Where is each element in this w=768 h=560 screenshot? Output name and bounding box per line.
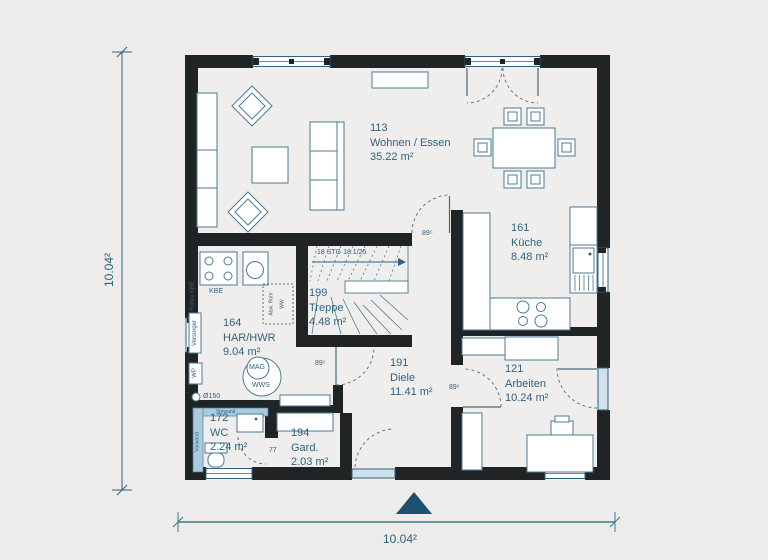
room-name: Arbeiten — [505, 377, 548, 392]
washer-kbe — [200, 252, 237, 285]
room-number: 121 — [505, 362, 548, 377]
room-name: Küche — [511, 236, 548, 251]
room-area: 9.04 m² — [223, 345, 276, 360]
stove-burner — [535, 315, 547, 327]
door-width-wc: 77 — [269, 447, 277, 454]
pipe-150 — [192, 393, 200, 401]
vorwand-label-top: Vorwand — [216, 410, 235, 415]
room-area: 8.48 m² — [511, 250, 548, 265]
kitchen-counter-left — [463, 213, 490, 330]
stair-landing — [345, 281, 408, 293]
pipe-label: Ø150 — [203, 393, 220, 400]
versorger-label: Versorger — [192, 320, 198, 346]
room-number: 113 — [370, 121, 451, 136]
kitchen-sink — [573, 248, 594, 273]
room-name: Diele — [390, 371, 433, 386]
door-width-kitchen: 89⁵ — [422, 230, 433, 237]
stair-note: 18 STG 18.1/25 — [317, 249, 366, 256]
room-label-arbeiten: 121 Arbeiten 10.24 m² — [505, 362, 548, 406]
room-area: 10.24 m² — [505, 391, 548, 406]
room-number: 161 — [511, 221, 548, 236]
room-area: 2.24 m² — [210, 440, 247, 455]
shelf-low — [462, 338, 505, 355]
dimension-left: 10.04² — [102, 253, 116, 287]
entry-arrow — [396, 492, 432, 514]
hall-sideboard — [280, 395, 330, 406]
sofa — [310, 122, 344, 210]
dining-table — [493, 128, 555, 168]
room-label-gard: 194 Gard. 2.03 m² — [291, 426, 328, 470]
riser-label-b: WW — [281, 299, 286, 308]
tall-cabinet — [462, 413, 482, 470]
room-label-treppe: 199 Treppe 4.48 m² — [309, 286, 346, 330]
room-number: 194 — [291, 426, 328, 441]
room-name: WC — [210, 426, 247, 441]
stove-burner — [537, 303, 546, 312]
wp-label: WP — [192, 368, 198, 378]
wws-label: WWS — [252, 382, 270, 389]
room-area: 35.22 m² — [370, 150, 451, 165]
room-area: 4.48 m² — [309, 315, 346, 330]
entry-door — [352, 469, 395, 478]
desk — [527, 435, 593, 472]
room-area: 11.41 m² — [390, 385, 433, 400]
coffee-table — [252, 147, 288, 183]
room-area: 2.03 m² — [291, 455, 328, 470]
room-name: Treppe — [309, 301, 346, 316]
stove-burner — [519, 317, 528, 326]
room-name: Gard. — [291, 441, 328, 456]
room-label-kueche: 161 Küche 8.48 m² — [511, 221, 548, 265]
terrace-door-arbeiten — [598, 368, 608, 410]
room-label-wc: 172 WC 2.24 m² — [210, 411, 247, 455]
door-width-arbeiten: 89⁵ — [449, 384, 460, 391]
sideboard-top — [372, 72, 428, 88]
room-name: Wohnen / Essen — [370, 136, 451, 151]
room-label-har: 164 HAR/HWR 9.04 m² — [223, 316, 276, 360]
sideboard-left — [197, 93, 217, 227]
room-number: 191 — [390, 356, 433, 371]
rohre-kbe-label: Rohre KBE — [190, 281, 196, 311]
vorwand-label-left: Vorwand — [196, 432, 201, 451]
room-label-diele: 191 Diele 11.41 m² — [390, 356, 433, 400]
room-number: 199 — [309, 286, 346, 301]
stove-burner — [517, 301, 529, 313]
kitchen-counter-bottom — [490, 298, 570, 330]
room-number: 164 — [223, 316, 276, 331]
kbe-label: KBE — [209, 288, 223, 295]
room-name: HAR/HWR — [223, 331, 276, 346]
mag-label: MAG — [249, 364, 265, 371]
room-label-wohnen: 113 Wohnen / Essen 35.22 m² — [370, 121, 451, 165]
door-width-lobby: 89⁵ — [315, 360, 326, 367]
riser-label-a: Abw. Rohr — [270, 292, 275, 315]
floorplan-page: 113 Wohnen / Essen 35.22 m² 161 Küche 8.… — [0, 0, 768, 560]
shelf-high — [505, 337, 558, 360]
dimension-bottom: 10.04² — [383, 532, 417, 546]
